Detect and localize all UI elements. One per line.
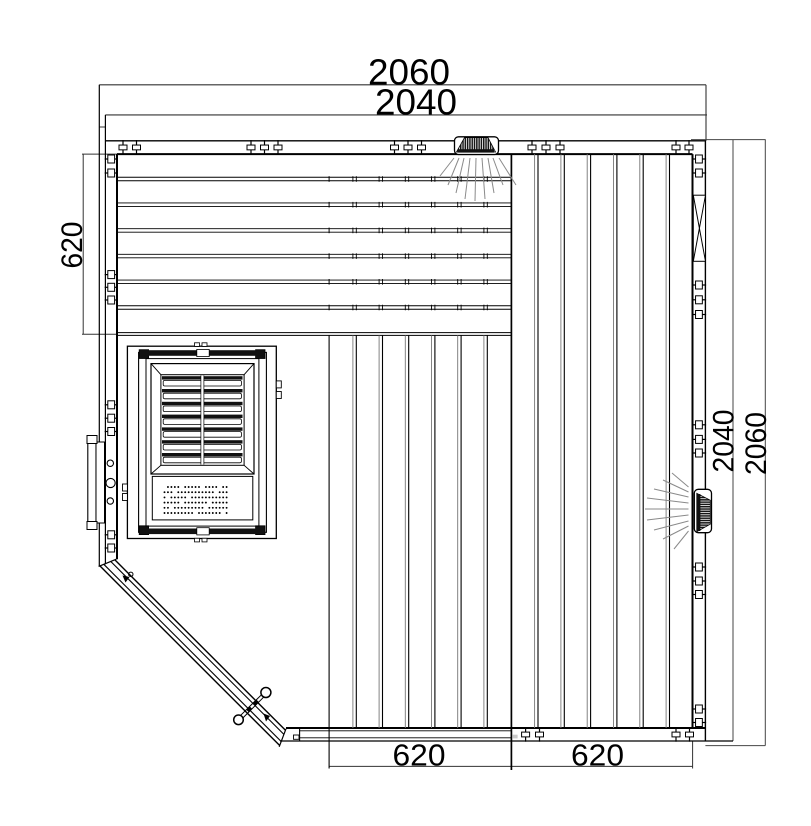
svg-text:620: 620 [56,222,89,269]
svg-text:620: 620 [571,738,624,773]
svg-text:2060: 2060 [740,412,773,475]
svg-text:2040: 2040 [375,82,457,123]
svg-text:2040: 2040 [708,410,741,473]
svg-text:620: 620 [393,738,446,773]
